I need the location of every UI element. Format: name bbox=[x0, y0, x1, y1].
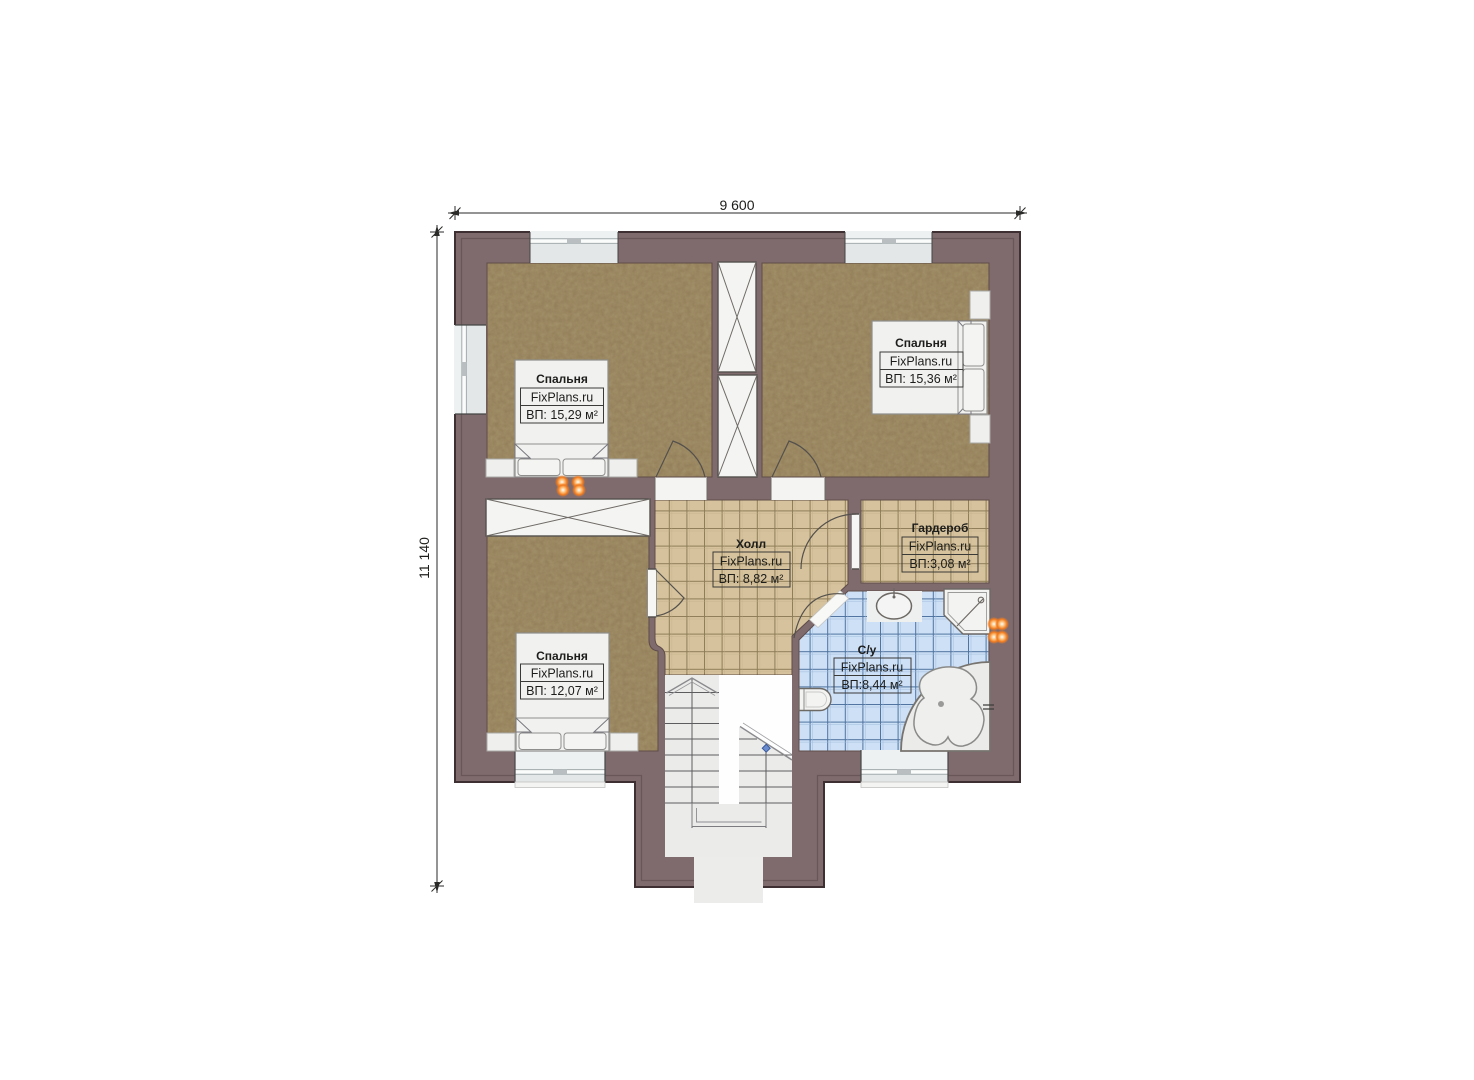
svg-text:Холл: Холл bbox=[736, 537, 766, 551]
svg-text:FixPlans.ru: FixPlans.ru bbox=[909, 540, 972, 554]
svg-text:FixPlans.ru: FixPlans.ru bbox=[531, 391, 594, 405]
svg-text:ВП: 8,82 м²: ВП: 8,82 м² bbox=[719, 572, 784, 586]
svg-text:FixPlans.ru: FixPlans.ru bbox=[720, 555, 783, 569]
svg-text:11 140: 11 140 bbox=[416, 537, 432, 579]
svg-text:Спальня: Спальня bbox=[536, 649, 588, 663]
svg-text:FixPlans.ru: FixPlans.ru bbox=[890, 355, 953, 369]
svg-text:Спальня: Спальня bbox=[536, 372, 588, 386]
svg-text:Спальня: Спальня bbox=[895, 336, 947, 350]
svg-text:FixPlans.ru: FixPlans.ru bbox=[841, 661, 904, 675]
svg-text:FixPlans.ru: FixPlans.ru bbox=[531, 667, 594, 681]
svg-text:ВП: 12,07 м²: ВП: 12,07 м² bbox=[526, 684, 598, 698]
svg-text:С/у: С/у bbox=[858, 643, 877, 657]
svg-text:ВП: 15,29 м²: ВП: 15,29 м² bbox=[526, 408, 598, 422]
svg-text:9 600: 9 600 bbox=[719, 197, 754, 213]
svg-text:Гардероб: Гардероб bbox=[912, 521, 969, 535]
svg-text:ВП:8,44 м²: ВП:8,44 м² bbox=[841, 678, 902, 692]
svg-text:ВП:3,08 м²: ВП:3,08 м² bbox=[909, 557, 970, 571]
svg-text:ВП: 15,36 м²: ВП: 15,36 м² bbox=[885, 372, 957, 386]
